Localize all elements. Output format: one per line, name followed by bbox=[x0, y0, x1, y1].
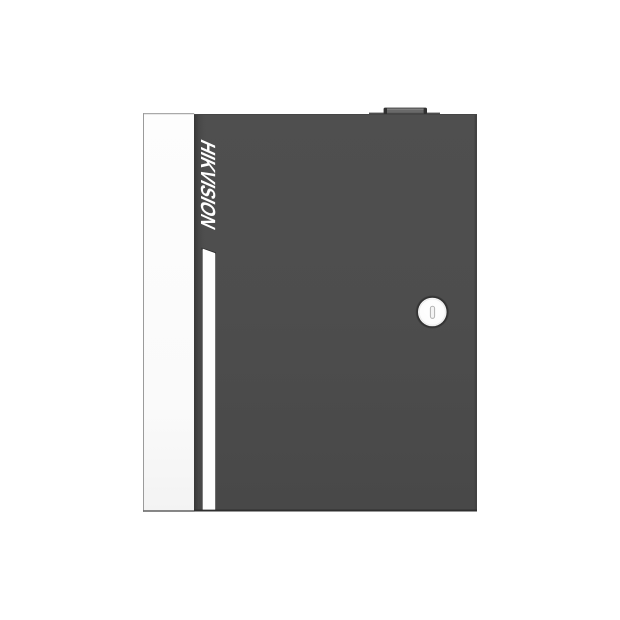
svg-text:HIKVISION: HIKVISION bbox=[196, 136, 219, 233]
